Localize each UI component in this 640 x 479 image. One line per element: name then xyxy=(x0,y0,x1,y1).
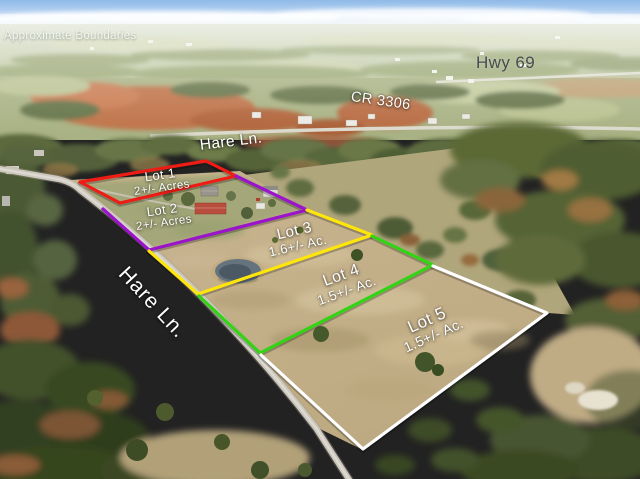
approximate-boundaries-watermark: Approximate Boundaries xyxy=(4,30,137,42)
aerial-listing-photo: Approximate Boundaries Hwy 69 CR 3306 Ha… xyxy=(0,0,640,479)
hwy-69-label: Hwy 69 xyxy=(476,54,535,72)
